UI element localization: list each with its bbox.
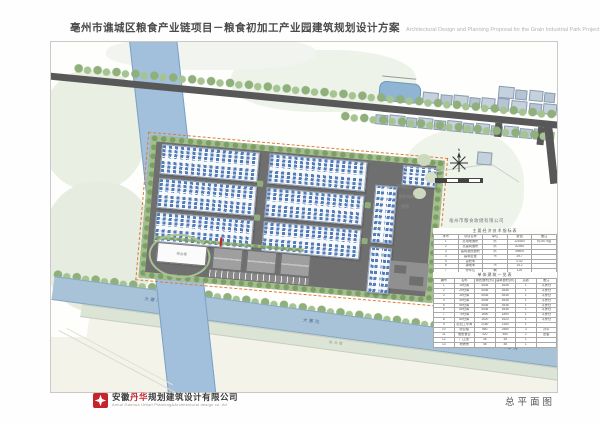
neighbor-company-label: 亳州市粮食收储有限公司 (449, 218, 504, 224)
plan-sheet: 亳州市谯城区粮食产业链项目－粮食初加工产业园建筑规划设计方案 Architect… (0, 0, 600, 424)
intersection-green (364, 202, 371, 209)
sheet-title-cn: 亳州市谯城区粮食产业链项目－粮食初加工产业园建筑规划设计方案 (70, 20, 400, 35)
drawing-name: 总平面图 (505, 394, 555, 408)
annotation-ring-road: 环场道路 (397, 184, 413, 190)
sheet-title: 亳州市谯城区粮食产业链项目－粮食初加工产业园建筑规划设计方案 Architect… (70, 20, 590, 35)
weighbridge-building (409, 276, 424, 286)
tree-cluster (417, 154, 431, 166)
intersection-green (257, 180, 264, 187)
village-building (544, 92, 556, 103)
industrial-site: 综合楼 (139, 135, 445, 303)
lone-building (476, 151, 492, 165)
sheet-title-en: Architectural Design and Planning Propos… (406, 27, 600, 33)
support-building (279, 253, 311, 278)
intersection-green (254, 214, 261, 221)
scale-bar (435, 178, 483, 183)
buildings-table: 单体建筑一览表 编号名称基底面积(㎡)建筑面积(㎡)层数备注11#仓库45364… (433, 272, 557, 348)
office-building: 综合楼 (156, 242, 208, 266)
weighbridge-building (394, 265, 407, 274)
village-building (529, 90, 544, 102)
north-arrow: N (449, 148, 469, 174)
river-label: 大寨沟 (303, 317, 322, 325)
publisher-logo-icon (93, 393, 108, 408)
publisher-name-en: Anhui Danhua Urban Planning&Architectura… (112, 402, 238, 407)
drawing-frame: 大寨沟 大寨沟 大寨沟 防洪堤 (50, 41, 558, 393)
publisher-name-prefix: 安徽 (112, 392, 130, 402)
weighbridge-pad (389, 260, 429, 291)
publisher-name-brand: 丹华 (130, 392, 148, 402)
north-arrow-icon (449, 152, 469, 174)
publisher-name-cn: 安徽丹华规划建筑设计有限公司 (112, 393, 238, 402)
publisher-name-suffix: 规划建筑设计有限公司 (148, 392, 238, 402)
support-building (245, 250, 277, 275)
office-label: 综合楼 (176, 251, 187, 257)
intersection-green (361, 238, 368, 245)
levee-label: 防洪堤 (329, 340, 345, 347)
annotation-wall: 围墙 (401, 204, 409, 210)
annotation-green-belt: 防护绿带 (399, 194, 415, 200)
publisher-block: 安徽丹华规划建筑设计有限公司 Anhui Danhua Urban Planni… (93, 393, 238, 408)
buildings-table-grid: 编号名称基底面积(㎡)建筑面积(㎡)层数备注11#仓库453645361平房仓2… (433, 278, 557, 348)
village-building (515, 89, 528, 100)
support-building (212, 247, 244, 272)
road-trees-north (73, 62, 558, 121)
